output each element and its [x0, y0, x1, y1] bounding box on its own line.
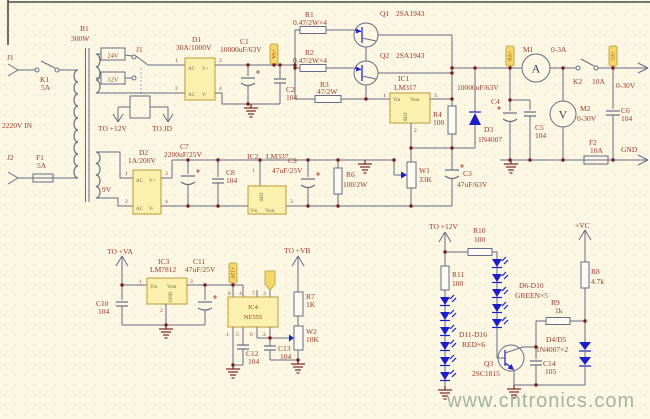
ic1-adj: ADJ — [404, 112, 409, 121]
resistor-r1 — [300, 27, 326, 34]
ic1-pin1: 1 — [383, 93, 386, 99]
label-tap24: 24V — [107, 53, 119, 60]
transistor-q2 — [354, 61, 378, 85]
resistor-r6 — [334, 160, 342, 206]
label-k2: K2 — [573, 77, 582, 86]
label-c4: C4 — [491, 97, 500, 106]
ic2-pin3: 3 — [290, 199, 293, 205]
label-m2-val: 0-30V — [577, 114, 597, 123]
label-r8: R8 — [591, 267, 600, 276]
label-r1-val: 0.47/2W×4 — [293, 18, 327, 27]
label-r4-val: 100 — [433, 118, 445, 127]
label-d6-10: D6-D10 — [519, 281, 544, 290]
ic2-vin: Vin — [250, 209, 258, 214]
ic4-pin3: 3 — [263, 291, 266, 297]
diode-d4 — [579, 342, 591, 351]
ground-symbol — [291, 360, 305, 373]
label-to-12v: TO +12V — [98, 124, 127, 133]
m1-letter: A — [532, 62, 541, 76]
resistor-r8 — [581, 262, 589, 288]
ic2-pin1: 1 — [252, 168, 255, 174]
resistor-r10 — [468, 249, 492, 256]
label-mains: 2220V IN — [2, 121, 33, 130]
ic4-ne555 — [228, 297, 278, 327]
cap-c4 — [497, 68, 517, 160]
label-c3: C3 — [463, 169, 472, 178]
ic1-pin2: 2 — [414, 128, 417, 134]
resistor-r9 — [546, 318, 570, 325]
d2-pin2: 2 — [125, 199, 128, 205]
label-r11-val: 100 — [452, 279, 464, 288]
label-ic4: IC4 — [248, 304, 259, 311]
d1-vplus: V+ — [202, 67, 209, 72]
label-q3-val: 2SC1815 — [472, 369, 500, 378]
transistor-q3 — [497, 345, 524, 371]
label-gnd-out: GND — [621, 145, 638, 154]
label-to-vb: TO +VB — [284, 246, 310, 255]
junction-dots — [120, 63, 614, 386]
label-tag-12v: +12V — [229, 267, 234, 279]
ground-symbol — [358, 160, 372, 173]
ground-symbol — [159, 325, 173, 338]
label-j2: J2 — [7, 153, 14, 162]
label-m2: M2 — [580, 104, 591, 113]
label-c9: C9 — [288, 156, 297, 165]
ic3-pin3: 3 — [190, 279, 193, 285]
label-q2-val: 2SA1943 — [396, 51, 425, 60]
ic4-pin1: 1 — [226, 332, 229, 338]
d2-vminus: V- — [149, 207, 154, 212]
d1-pin4: 4 — [219, 86, 222, 92]
label-w1: W1 — [419, 166, 430, 175]
label-c11-val: 47uF/25V — [185, 265, 216, 274]
label-q2: Q2 — [380, 51, 389, 60]
label-c2-val: 104 — [286, 93, 298, 102]
watermark: www.cntronics.com — [446, 390, 635, 412]
ne555-section: IC4 NE555 8 4 7 3 1 5 6 2 TO +VB R7 1K W… — [226, 246, 320, 378]
label-tap12: 12V — [107, 77, 119, 84]
label-to-va: TO +VA — [107, 247, 133, 256]
ground-symbol — [244, 104, 258, 117]
transformer-b1 — [74, 48, 100, 202]
label-tap9: 9V — [102, 185, 112, 194]
aux-12v-section: Vin Vout GND 1 3 2 +12V TO +VA IC3 LM781… — [96, 247, 243, 338]
label-d4-5: D4/D5 — [546, 335, 567, 344]
cap-c8 — [212, 160, 224, 206]
label-f2-val: 10A — [590, 146, 604, 155]
label-w1-val: 33K — [419, 175, 433, 184]
resistor-r11 — [441, 266, 449, 290]
d1-vminus: V- — [202, 93, 207, 98]
label-ic2-val: LM337 — [266, 152, 289, 161]
ic3-pin1: 1 — [139, 279, 142, 285]
label-r7-val: 1K — [306, 300, 316, 309]
cap-c1 — [241, 65, 260, 104]
ic1-vout: Vout — [410, 98, 420, 103]
ic4-pin7: 7 — [252, 291, 255, 297]
label-c1-val: 10000uF/63V — [220, 45, 262, 54]
label-r6: R6 — [346, 170, 355, 179]
ic3-pin2: 2 — [160, 308, 163, 314]
bridge-d1: AC V+ AC V- 1 3 2 4 D1 30A/1000V +VA C1 … — [175, 35, 298, 117]
resistor-r7 — [294, 292, 303, 316]
resistor-r3 — [315, 96, 341, 103]
label-q1: Q1 — [380, 9, 389, 18]
label-tag-va: +VA — [270, 49, 275, 59]
label-c12-val: 104 — [248, 357, 260, 366]
label-c8-val: 104 — [226, 176, 238, 185]
label-d11-16-val: RED×6 — [462, 340, 485, 349]
ic2-vout: Vout — [265, 209, 275, 214]
led-chain-red — [440, 295, 456, 381]
led-chain-green — [492, 257, 508, 328]
schematic-page: J1 K1 5A 2220V IN J2 F1 5A B1 300W 24V 1… — [0, 0, 650, 419]
label-tag-vc: +VC — [609, 51, 614, 61]
ic3-gnd: GND — [169, 291, 174, 302]
mains-input: J1 K1 5A 2220V IN J2 F1 5A B1 300W — [2, 24, 100, 202]
cap-c13 — [264, 338, 276, 360]
ic2-adj: ADJ — [260, 192, 265, 201]
diode-d5 — [579, 357, 591, 366]
cap-c2 — [274, 65, 286, 104]
label-r2-val: 0.47/2W×4 — [293, 56, 327, 65]
label-c14-val: 105 — [545, 367, 557, 376]
resistor-r2 — [300, 65, 326, 72]
transistor-q1 — [354, 23, 378, 47]
label-f1-val: 5A — [37, 161, 47, 170]
cap-c5 — [510, 100, 536, 160]
label-r9-val: 1k — [555, 306, 563, 315]
label-r10: R10 — [473, 226, 486, 235]
d2-ac2: AC — [136, 207, 144, 212]
relay-coil-j1 — [130, 96, 150, 118]
cap-c9 — [301, 160, 320, 206]
label-ic1-val: LM317 — [394, 83, 417, 92]
label-m1: M1 — [523, 45, 534, 54]
d2-pin1: 1 — [125, 171, 128, 177]
resistor-r4 — [448, 106, 456, 134]
label-m1-val: 0-3A — [551, 45, 567, 54]
ic4-pin4: 4 — [239, 291, 242, 297]
label-d3: D3 — [484, 125, 493, 134]
label-q3: Q3 — [484, 359, 493, 368]
ic4-pin2: 2 — [263, 332, 266, 338]
label-c10-val: 104 — [98, 307, 110, 316]
label-r3-val: 47/2W — [317, 87, 338, 96]
ic4-pin8: 8 — [228, 291, 231, 297]
label-c4-val: 10000uF/63V — [457, 83, 499, 92]
label-c3-val: 47uF/63V — [457, 180, 488, 189]
d1-pin3: 3 — [219, 58, 222, 64]
ic3-vin: Vin — [150, 285, 158, 290]
label-ic2: IC2 — [247, 152, 259, 161]
cap-c7 — [181, 160, 200, 206]
ground-symbol — [226, 365, 240, 378]
label-d6-10-val: GREEN×5 — [515, 291, 548, 300]
m2-letter: V — [559, 108, 568, 122]
label-c6-val: 104 — [621, 114, 633, 123]
label-ic4-val: NE555 — [244, 314, 262, 321]
d1-pin2: 2 — [175, 86, 178, 92]
label-w2-val: 10K — [306, 335, 320, 344]
ic1-pin3: 3 — [434, 93, 437, 99]
label-d1-val: 30A/1000V — [176, 43, 212, 52]
ground-symbol — [504, 160, 518, 173]
label-ic3-val: LM7812 — [150, 265, 177, 274]
led-display-section: TO +12V R10 100 R11 100 D11-D16 RED×6 D6… — [429, 221, 604, 399]
negative-rail-section: AC V+ AC V- 1 3 2 4 D2 1A/200V C7 2200uF… — [96, 142, 452, 214]
label-q1-val: 2SA1943 — [396, 9, 425, 18]
ic1-vin: Vin — [393, 98, 401, 103]
net-flag-555-out — [265, 271, 275, 290]
label-k1-val: 5A — [41, 83, 51, 92]
label-vc: +VC — [575, 221, 590, 230]
label-tag-vb: +VB — [506, 51, 511, 61]
cap-c10 — [116, 285, 128, 325]
pot-w1 — [394, 148, 416, 206]
ic4-pin5: 5 — [236, 332, 239, 338]
label-relay-j1: J1 — [136, 45, 143, 54]
ic4-pin6: 6 — [250, 332, 253, 338]
label-to-12v-led: TO +12V — [429, 222, 458, 231]
label-r8-val: 4.7k — [591, 277, 604, 286]
label-output-range: 0-30V — [616, 81, 636, 90]
label-to-jd: TO JD — [152, 124, 173, 133]
label-b1-val: 300W — [71, 34, 90, 43]
d1-ac1: AC — [188, 67, 196, 72]
label-d3-val: 1N4007 — [478, 135, 502, 144]
schematic-canvas: J1 K1 5A 2220V IN J2 F1 5A B1 300W 24V 1… — [0, 0, 650, 419]
label-d4-5-val: 1N4007×2 — [536, 345, 568, 354]
d1-pin1: 1 — [175, 58, 178, 64]
label-c9-val: 47uF/25V — [272, 166, 303, 175]
label-r6-val: 100/2W — [343, 180, 368, 189]
label-c7-val: 2200uF/25V — [164, 150, 203, 159]
meter-m1: A — [522, 54, 550, 82]
switch-k1 — [41, 61, 55, 68]
ic3-lm7812 — [147, 278, 187, 304]
switch-k2 — [581, 59, 594, 66]
label-b1: B1 — [80, 24, 89, 33]
label-k2-val: 10A — [592, 77, 606, 86]
d2-ac1: AC — [136, 179, 144, 184]
ic3-vout: Vout — [167, 285, 177, 290]
label-d2-val: 1A/200V — [128, 156, 157, 165]
label-d11-16: D11-D16 — [459, 330, 487, 339]
cap-c11 — [198, 285, 217, 325]
regulator-lm317: Vin Vout ADJ 1 3 2 IC1 LM317 R4 100 D3 1… — [383, 35, 502, 206]
d1-ac2: AC — [188, 93, 196, 98]
d2-pin4: 4 — [165, 199, 168, 205]
label-j1: J1 — [7, 53, 14, 62]
label-ic1: IC1 — [398, 74, 410, 83]
label-r11: R11 — [452, 270, 464, 279]
pass-transistors: R1 0.47/2W×4 R2 0.47/2W×4 R3 47/2W Q1 2S… — [293, 9, 452, 103]
label-r10-val: 100 — [474, 235, 486, 244]
d2-pin3: 3 — [165, 171, 168, 177]
relay-contact-blade — [136, 56, 148, 65]
output-section: +VB A +VC V M1 0-3A K2 10A — [452, 45, 648, 173]
label-c5-val: 104 — [535, 131, 547, 140]
label-c13-val: 104 — [280, 352, 292, 361]
sheet-border — [8, 0, 650, 45]
d2-vplus: V+ — [149, 179, 156, 184]
